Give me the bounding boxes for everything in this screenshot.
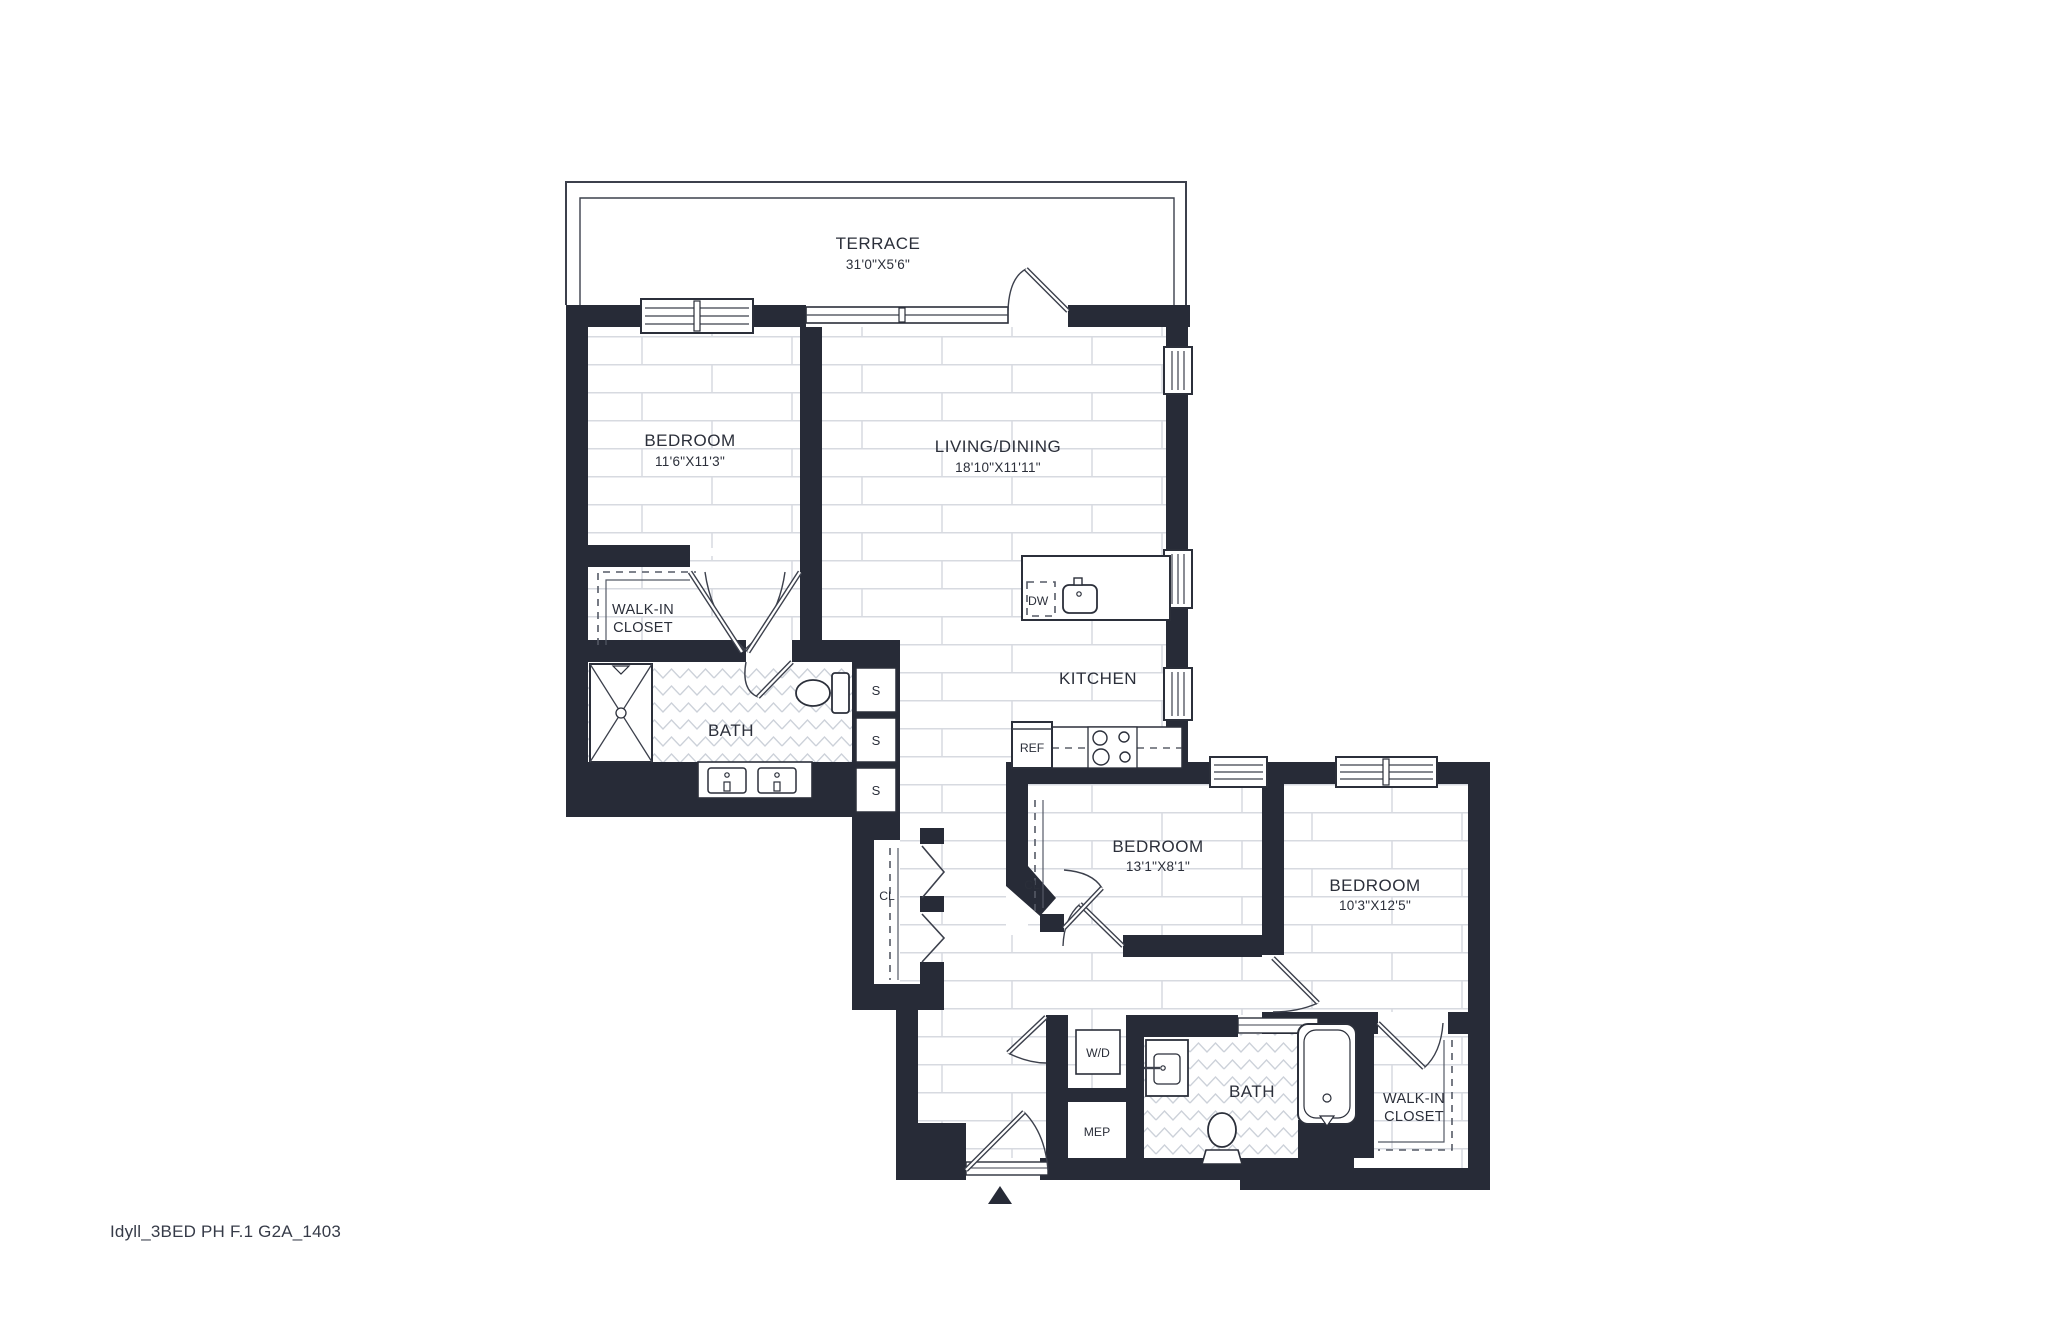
sink-icon xyxy=(708,768,746,793)
kitchen-side-window-2 xyxy=(1164,668,1192,720)
bedroom2-label: BEDROOM xyxy=(1112,837,1203,856)
floorplan-page: TERRACE 31'0"X5'6" xyxy=(0,0,2048,1339)
terrace-door xyxy=(1008,269,1068,311)
sink-icon xyxy=(758,768,796,793)
washer-dryer-icon: W/D xyxy=(1076,1030,1120,1074)
kitchen-counter: REF xyxy=(1012,722,1182,768)
bathtub-icon xyxy=(1298,1024,1356,1126)
kitchen-label: KITCHEN xyxy=(1059,669,1137,688)
double-vanity xyxy=(698,762,812,798)
living-low-window xyxy=(806,307,1008,323)
shelf-stack: S S S xyxy=(856,668,896,812)
walkin2-label-line2: CLOSET xyxy=(1384,1109,1444,1125)
bedroom1-window xyxy=(641,299,753,333)
plan-id-label: Idyll_3BED PH F.1 G2A_1403 xyxy=(110,1222,341,1241)
mep-label: MEP xyxy=(1084,1125,1110,1139)
dishwasher-label: DW xyxy=(1028,594,1049,608)
walkin1-label-line2: CLOSET xyxy=(613,620,673,636)
stove-icon xyxy=(1088,727,1137,768)
kitchen-island: DW xyxy=(1022,556,1170,620)
bedroom1-label: BEDROOM xyxy=(644,431,735,450)
bath2-label: BATH xyxy=(1229,1082,1275,1101)
washer-dryer-label: W/D xyxy=(1086,1046,1110,1060)
mep-closet: MEP xyxy=(1068,1102,1126,1158)
shower-icon xyxy=(590,664,652,762)
terrace: TERRACE 31'0"X5'6" xyxy=(566,182,1186,305)
terrace-dims: 31'0"X5'6" xyxy=(846,257,910,272)
living-label: LIVING/DINING xyxy=(935,437,1061,456)
walkin2-label-line1: WALK-IN xyxy=(1383,1091,1445,1107)
bedroom1-dims: 11'6"X11'3" xyxy=(655,454,725,469)
bath2-vanity-icon xyxy=(1144,1040,1188,1096)
entry-arrow-icon xyxy=(988,1186,1012,1204)
living-dims: 18'10"X11'11" xyxy=(955,460,1041,475)
closet1-label: CL xyxy=(879,889,895,903)
entry-threshold xyxy=(966,1162,1048,1175)
bedroom3-dims: 10'3"X12'5" xyxy=(1339,898,1411,913)
walkin1-label-line1: WALK-IN xyxy=(612,602,674,618)
bedroom2-window xyxy=(1210,757,1267,787)
shelf-label: S xyxy=(872,783,881,798)
bedroom2-dims: 13'1"X8'1" xyxy=(1126,859,1190,874)
closet2-label: CL xyxy=(1024,878,1040,892)
bath1-label: BATH xyxy=(708,721,754,740)
shelf-label: S xyxy=(872,683,881,698)
bedroom3-label: BEDROOM xyxy=(1329,876,1420,895)
refrigerator-icon: REF xyxy=(1012,722,1052,768)
bedroom3-window xyxy=(1336,757,1437,787)
shelf-label: S xyxy=(872,733,881,748)
terrace-label: TERRACE xyxy=(836,234,921,253)
living-side-window xyxy=(1164,347,1192,394)
floorplan-canvas: TERRACE 31'0"X5'6" xyxy=(0,0,2048,1339)
refrigerator-label: REF xyxy=(1020,741,1044,755)
